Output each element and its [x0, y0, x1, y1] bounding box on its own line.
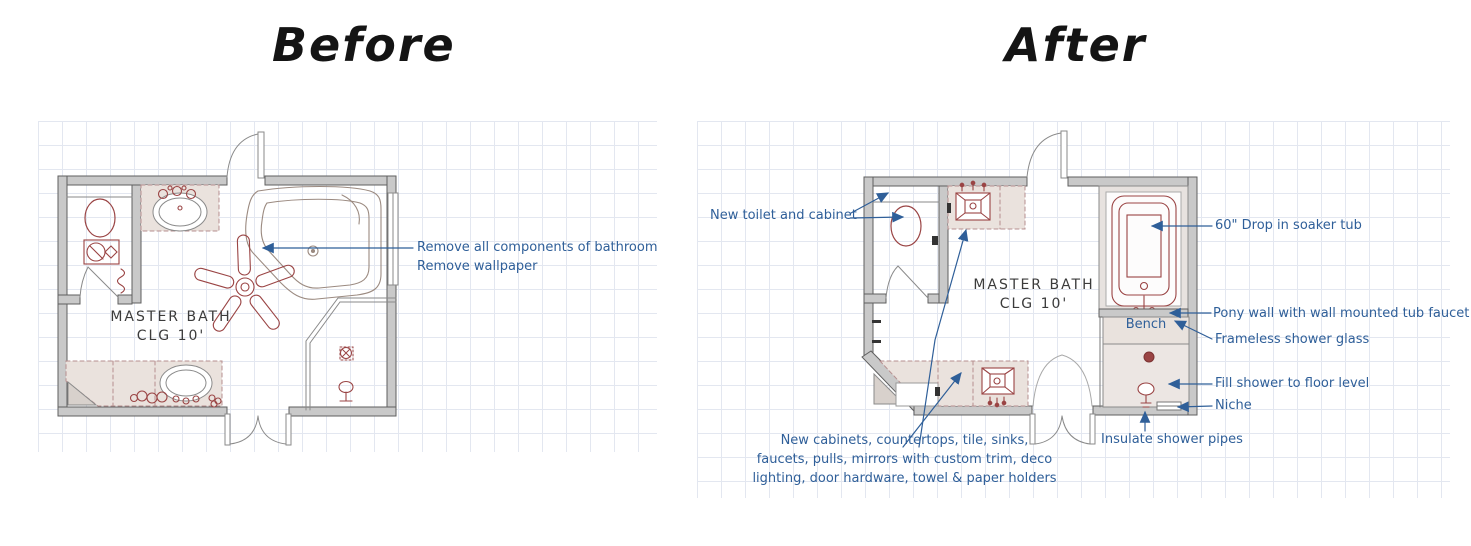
note-insulate-pipes: Insulate shower pipes [1101, 432, 1243, 447]
before-shower [306, 298, 396, 410]
after-entry-door [1027, 131, 1067, 178]
after-bottom-vanity [874, 361, 1028, 407]
after-room-label: MASTER BATH CLG 10' [954, 276, 1114, 314]
note-new-cabinets: New cabinets, countertops, tile, sinks, … [752, 431, 1057, 488]
note-fill-shower: Fill shower to floor level [1215, 376, 1369, 391]
before-after-floorplan: Before After [0, 0, 1471, 546]
after-top-sink [956, 181, 990, 220]
before-wc-door [80, 267, 118, 297]
before-water-closet [67, 197, 132, 297]
before-floor-plan [58, 132, 413, 445]
after-ceiling-height: CLG 10' [954, 295, 1114, 314]
note-niche: Niche [1215, 398, 1252, 413]
after-top-vanity [947, 181, 1025, 229]
before-entry-door [227, 132, 264, 178]
after-shower-drain [1144, 352, 1154, 362]
note-new-cabinets-line1: New cabinets, countertops, tile, sinks, [752, 431, 1057, 450]
before-top-vanity [141, 185, 219, 231]
after-wc-door [886, 266, 928, 298]
new-toilet-arrow-toilet [851, 217, 903, 218]
note-pony-wall: Pony wall with wall mounted tub faucet [1213, 306, 1469, 321]
after-toilet [891, 206, 921, 246]
note-soaker-tub: 60" Drop in soaker tub [1215, 218, 1362, 233]
before-corner-tub [246, 187, 381, 300]
before-double-door [225, 414, 291, 445]
before-bottom-vanity [66, 361, 222, 407]
note-new-toilet: New toilet and cabinet [710, 208, 848, 223]
after-bottom-vanity-hinge [935, 387, 940, 396]
before-window [388, 193, 398, 285]
before-room-name: MASTER BATH [91, 308, 251, 327]
after-niche [1157, 402, 1181, 410]
note-new-cabinets-line3: lighting, door hardware, towel & paper h… [752, 469, 1057, 488]
before-shower-head [339, 382, 353, 402]
note-new-cabinets-line2: faucets, pulls, mirrors with custom trim… [752, 450, 1057, 469]
before-room-label: MASTER BATH CLG 10' [91, 308, 251, 346]
after-tp-holder [932, 236, 938, 245]
note-remove-wallpaper: Remove wallpaper [417, 259, 538, 274]
before-ceiling-height: CLG 10' [91, 327, 251, 346]
note-remove-components: Remove all components of bathroom [417, 240, 658, 255]
note-frameless-glass: Frameless shower glass [1215, 332, 1369, 347]
bench-label: Bench [1108, 317, 1184, 332]
before-toilet [85, 199, 115, 237]
after-water-closet [873, 202, 939, 298]
floorplan-drawing [0, 0, 1471, 546]
before-shower-drain [340, 347, 353, 360]
after-room-name: MASTER BATH [954, 276, 1114, 295]
after-top-vanity-hinge [947, 203, 951, 213]
before-wc-cabinet [84, 240, 125, 293]
